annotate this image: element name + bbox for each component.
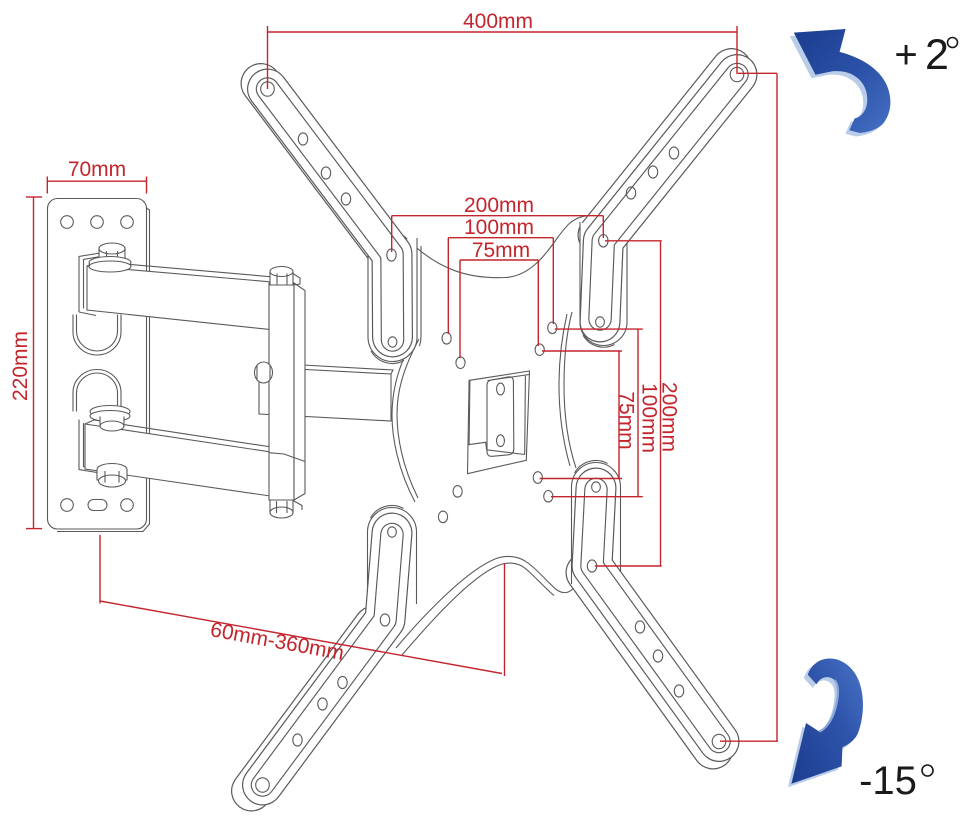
svg-text:-15: -15 bbox=[859, 759, 917, 803]
svg-text:60mm-360mm: 60mm-360mm bbox=[209, 618, 346, 665]
svg-text:100mm: 100mm bbox=[638, 383, 661, 453]
svg-text:200mm: 200mm bbox=[658, 382, 681, 452]
svg-text:400mm: 400mm bbox=[463, 10, 533, 33]
svg-text:100mm: 100mm bbox=[464, 216, 534, 239]
svg-text:220mm: 220mm bbox=[9, 331, 32, 401]
svg-text:+: + bbox=[894, 33, 917, 77]
svg-text:2: 2 bbox=[925, 31, 949, 79]
svg-text:70mm: 70mm bbox=[68, 158, 126, 181]
svg-text:75mm: 75mm bbox=[472, 239, 530, 262]
svg-text:75mm: 75mm bbox=[615, 391, 638, 449]
svg-text:200mm: 200mm bbox=[464, 194, 534, 217]
